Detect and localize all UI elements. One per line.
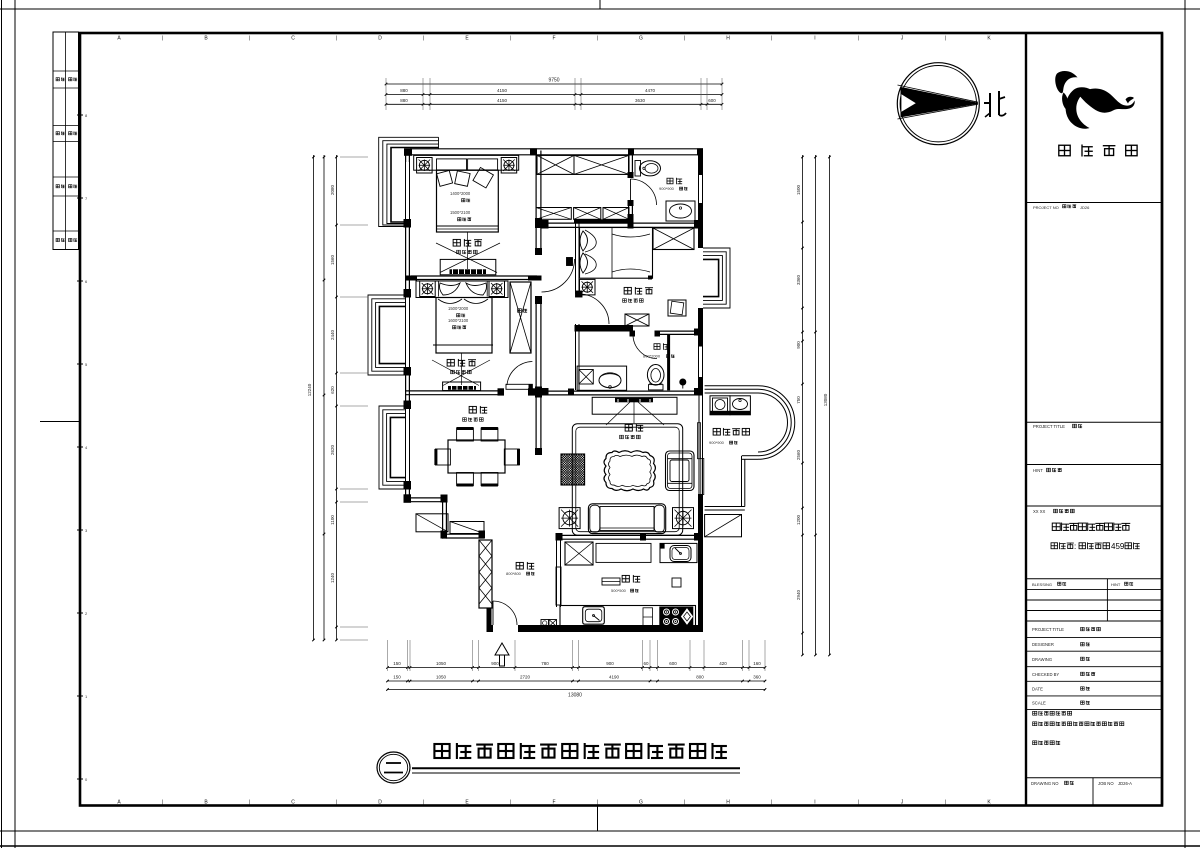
svg-text:800*800: 800*800 <box>506 571 522 576</box>
svg-text:|: | <box>771 36 772 42</box>
svg-text:1400*2000: 1400*2000 <box>450 191 471 196</box>
svg-text:3360: 3360 <box>796 274 801 285</box>
svg-text:HINT: HINT <box>1033 468 1043 473</box>
svg-text:420: 420 <box>719 661 727 666</box>
svg-text:1100: 1100 <box>330 515 335 525</box>
svg-text:PROJECT NO: PROJECT NO <box>1033 205 1059 210</box>
svg-text:DRAWING: DRAWING <box>1032 657 1052 662</box>
svg-text:1240: 1240 <box>330 572 335 583</box>
svg-text:JD26: JD26 <box>1080 205 1090 210</box>
svg-text:900: 900 <box>796 341 801 349</box>
svg-text:900: 900 <box>606 661 614 666</box>
svg-text:I: I <box>814 800 815 806</box>
svg-text:780: 780 <box>541 661 549 666</box>
svg-text:3630: 3630 <box>635 98 646 103</box>
svg-text:459: 459 <box>1111 542 1125 551</box>
svg-text:150: 150 <box>393 661 401 666</box>
svg-text:|: | <box>945 800 946 806</box>
svg-text:|: | <box>597 800 598 806</box>
svg-text:1050: 1050 <box>436 661 447 666</box>
svg-text:4190: 4190 <box>609 675 620 680</box>
svg-text:|: | <box>945 36 946 42</box>
svg-text:|: | <box>858 36 859 42</box>
svg-text:JOB NO: JOB NO <box>1098 781 1114 786</box>
svg-text:2620: 2620 <box>330 444 335 455</box>
svg-text:G: G <box>639 800 643 806</box>
svg-text:2720: 2720 <box>520 675 531 680</box>
svg-text:1500: 1500 <box>796 184 801 195</box>
svg-text:XX XX: XX XX <box>1033 509 1046 514</box>
svg-text:150: 150 <box>393 675 401 680</box>
svg-text:900*900: 900*900 <box>709 440 725 445</box>
svg-text:|: | <box>336 800 337 806</box>
svg-text:PROJECT TITLE: PROJECT TITLE <box>1032 627 1064 632</box>
svg-text:D: D <box>378 800 382 806</box>
svg-text:F: F <box>552 800 555 806</box>
svg-text:4150: 4150 <box>497 88 508 93</box>
svg-text:C: C <box>291 800 295 806</box>
svg-text:880: 880 <box>400 88 408 93</box>
svg-text:900: 900 <box>491 661 499 666</box>
svg-text:600: 600 <box>708 98 716 103</box>
svg-text:|: | <box>249 800 250 806</box>
svg-text:|: | <box>162 800 163 806</box>
svg-text:750: 750 <box>796 396 801 404</box>
svg-text:|: | <box>423 800 424 806</box>
svg-text:|: | <box>771 800 772 806</box>
svg-text:12240: 12240 <box>307 383 312 396</box>
svg-text:DESIGNER: DESIGNER <box>1032 642 1054 647</box>
svg-text:1560: 1560 <box>330 254 335 265</box>
svg-text:G: G <box>639 36 643 42</box>
svg-text:HINT: HINT <box>1111 582 1121 587</box>
svg-text:900*900: 900*900 <box>659 186 675 191</box>
svg-text:|: | <box>858 800 859 806</box>
svg-text:800: 800 <box>696 675 704 680</box>
svg-text:2440: 2440 <box>330 329 335 340</box>
svg-text:360: 360 <box>753 675 761 680</box>
svg-text:|: | <box>684 800 685 806</box>
svg-text:2560: 2560 <box>796 449 801 460</box>
svg-text:600: 600 <box>669 661 677 666</box>
svg-text:|: | <box>684 36 685 42</box>
svg-text:500*500: 500*500 <box>611 588 627 593</box>
svg-text:BLESSING: BLESSING <box>1032 582 1052 587</box>
svg-text:1600*2100: 1600*2100 <box>448 318 469 323</box>
svg-text:PROJECT TITLE: PROJECT TITLE <box>1033 424 1065 429</box>
svg-text:1050: 1050 <box>436 675 447 680</box>
svg-text:|: | <box>510 800 511 806</box>
svg-text::: : <box>1074 542 1076 551</box>
svg-text:|: | <box>336 36 337 42</box>
svg-text:|: | <box>597 36 598 42</box>
svg-text:9750: 9750 <box>548 78 559 84</box>
svg-text:4150: 4150 <box>497 98 508 103</box>
svg-text:1500*2000: 1500*2000 <box>448 306 469 311</box>
svg-text:4470: 4470 <box>645 88 656 93</box>
svg-text:|: | <box>510 36 511 42</box>
svg-text:13080: 13080 <box>823 393 828 406</box>
svg-text:I: I <box>814 36 815 42</box>
svg-text:1500*2100: 1500*2100 <box>450 210 471 215</box>
svg-text:|: | <box>249 36 250 42</box>
svg-text:60: 60 <box>643 661 649 666</box>
svg-text:880: 880 <box>400 98 408 103</box>
svg-text:2080: 2080 <box>330 184 335 195</box>
svg-text:|: | <box>423 36 424 42</box>
svg-text:2940: 2940 <box>796 589 801 600</box>
svg-text:D: D <box>378 36 382 42</box>
svg-text:13080: 13080 <box>568 693 582 699</box>
svg-text:H: H <box>726 800 730 806</box>
svg-text:|: | <box>162 36 163 42</box>
svg-text:620: 620 <box>330 386 335 394</box>
svg-text:SCALE: SCALE <box>1032 701 1046 706</box>
svg-text:160: 160 <box>753 661 761 666</box>
svg-text:1200: 1200 <box>796 514 801 525</box>
svg-text:CHECKED BY: CHECKED BY <box>1032 672 1059 677</box>
svg-text:DATE: DATE <box>1032 686 1043 691</box>
svg-text:C: C <box>291 36 295 42</box>
svg-text:F: F <box>552 36 555 42</box>
svg-text:DRAWING NO: DRAWING NO <box>1031 781 1059 786</box>
svg-text:JD26-A: JD26-A <box>1118 781 1132 786</box>
svg-text:H: H <box>726 36 730 42</box>
